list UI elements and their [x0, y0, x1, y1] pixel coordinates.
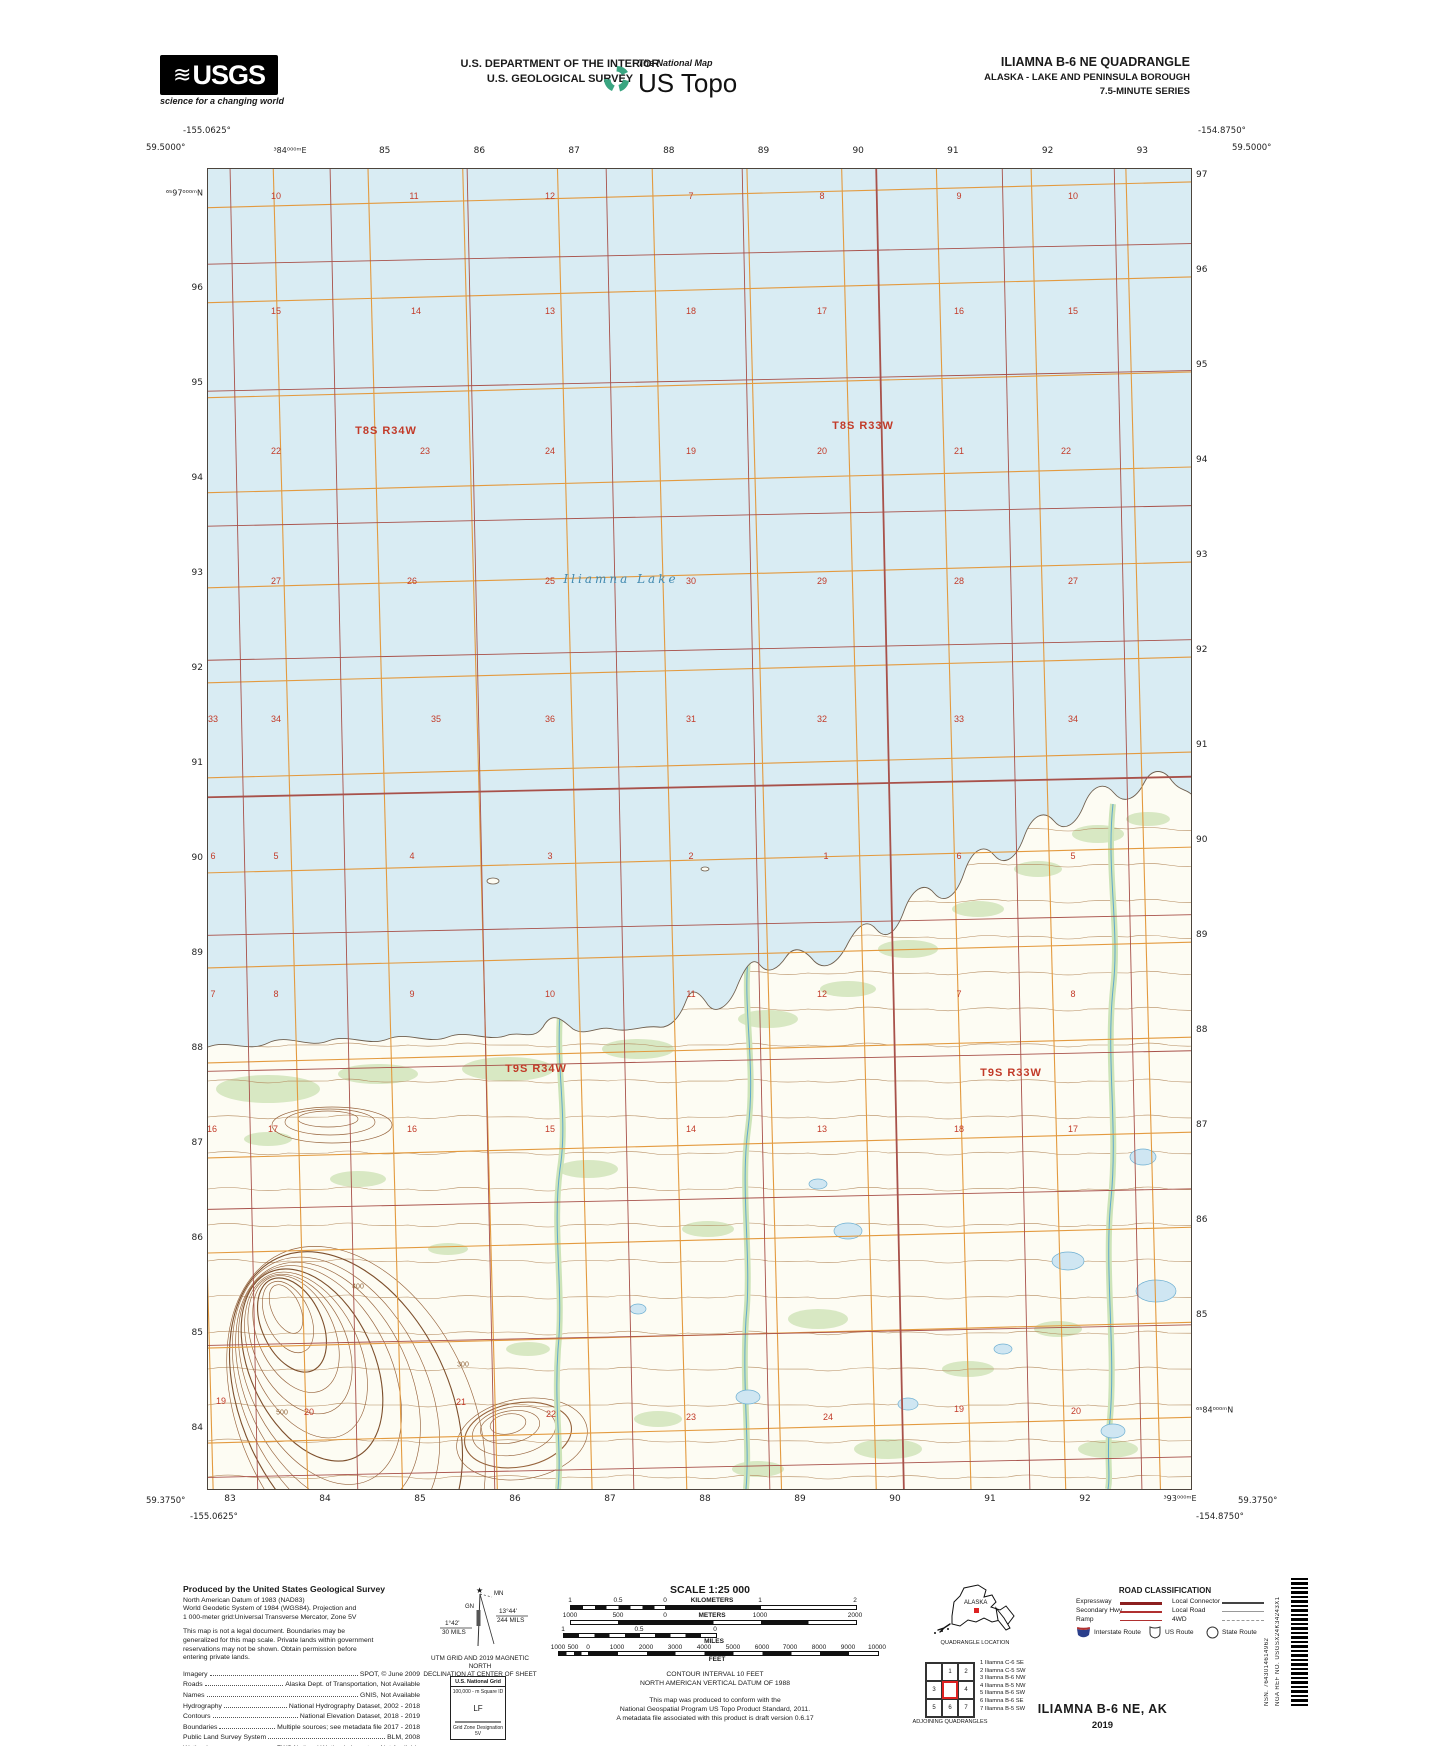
road-class-sample-line	[1120, 1611, 1162, 1613]
quadrangle-header: ILIAMNA B-6 NE QUADRANGLE ALASKA - LAKE …	[770, 55, 1190, 97]
ft-tick: 0	[586, 1644, 590, 1651]
us-route-item: US Route	[1148, 1626, 1194, 1639]
adjoining-grid: 1234567	[925, 1662, 975, 1718]
grid-label-left: 93	[192, 568, 203, 578]
vertical-datum: NORTH AMERICAN VERTICAL DATUM OF 1988	[560, 1679, 870, 1688]
grid-label-top: ³84⁰⁰⁰ᵐE	[273, 146, 306, 155]
conformance-line: A metadata file associated with this pro…	[560, 1714, 870, 1723]
scale-bar-segment	[570, 1605, 667, 1610]
scale-bar-segment	[570, 1620, 620, 1625]
national-map-icon	[600, 62, 634, 96]
adjoining-cell: 6	[942, 1699, 958, 1717]
credit-source: Roads	[183, 1681, 203, 1690]
corner-top-left-lat: 59.5000°	[146, 143, 185, 153]
credit-row: RoadsAlaska Dept. of Transportation, Not…	[183, 1679, 420, 1690]
dot-leader	[224, 1701, 287, 1708]
source-credit-rows: ImagerySPOT, © June 2009RoadsAlaska Dept…	[183, 1669, 420, 1746]
grid-label-right: 95	[1196, 360, 1207, 370]
grid-label-top: 89	[758, 146, 769, 156]
grid-label-bottom: 87	[604, 1494, 615, 1504]
corner-bottom-right-lat: 59.3750°	[1238, 1496, 1277, 1506]
conformance-line: National Geospatial Program US Topo Prod…	[560, 1705, 870, 1714]
adjoining-cell: 2	[958, 1663, 974, 1681]
credit-source: Contours	[183, 1713, 211, 1722]
state-route-label: State Route	[1222, 1629, 1257, 1636]
grid-label-bottom: 85	[414, 1494, 425, 1504]
legal-line: This map is not a legal document. Bounda…	[183, 1628, 420, 1637]
grid-label-bottom: 83	[224, 1494, 235, 1504]
nga-ref-text: NGA REF NO. USGSX24K34243X1	[1275, 1580, 1281, 1706]
grid-label-right: 91	[1196, 740, 1207, 750]
credit-row: Public Land Survey SystemBLM, 2008	[183, 1732, 420, 1743]
road-class-label: Local Road	[1172, 1607, 1205, 1614]
adjoining-center-cell	[942, 1681, 958, 1699]
grid-label-bottom: 92	[1079, 1494, 1090, 1504]
grid-label-right: 92	[1196, 645, 1207, 655]
grid-label-left: ⁶⁵97⁰⁰⁰ᵐN	[166, 189, 203, 198]
sheet-name: ILIAMNA B-6 NE, AK	[990, 1702, 1215, 1716]
sheet-title: ILIAMNA B-6 NE, AK 2019	[990, 1702, 1215, 1731]
us-topo-title: US Topo	[638, 68, 737, 99]
credit-source: Hydrography	[183, 1703, 222, 1712]
conformance-line: This map was produced to conform with th…	[560, 1696, 870, 1705]
km-tick: 0	[663, 1597, 667, 1604]
datum-line: North American Datum of 1983 (NAD83)	[183, 1597, 420, 1606]
credit-value: Multiple sources; see metadata file 2017…	[277, 1724, 420, 1733]
road-class-label: Local Connector	[1172, 1598, 1220, 1605]
adjoining-quad-name: 2 Iliamna C-5 SW	[980, 1668, 1025, 1676]
usng-divider	[455, 1721, 501, 1723]
corner-bottom-left-lon: -155.0625°	[190, 1512, 238, 1522]
grid-label-right: 97	[1196, 170, 1207, 180]
ft-tick: 10000	[868, 1644, 886, 1651]
interstate-route-label: Interstate Route	[1094, 1629, 1141, 1636]
adjoining-caption: ADJOINING QUADRANGLES	[905, 1719, 995, 1725]
credit-row: HydrographyNational Hydrography Dataset,…	[183, 1701, 420, 1712]
grid-label-right: 86	[1196, 1215, 1207, 1225]
adjoining-cell: 7	[958, 1699, 974, 1717]
grid-label-top: 87	[568, 146, 579, 156]
m-tick: 0	[663, 1612, 667, 1619]
road-classification-title: ROAD CLASSIFICATION	[1070, 1586, 1260, 1595]
ft-tick: 6000	[755, 1644, 769, 1651]
grid-label-top: 90	[852, 146, 863, 156]
mi-tick: 1	[561, 1626, 565, 1633]
grid-label-left: 90	[192, 853, 203, 863]
credit-value: SPOT, © June 2009	[360, 1671, 420, 1680]
road-class-sample-line	[1222, 1602, 1264, 1604]
m-tick: 1000	[563, 1612, 577, 1619]
credits-heading: Produced by the United States Geological…	[183, 1585, 420, 1594]
usgs-logo: ≋ USGS	[160, 55, 278, 95]
dot-leader	[207, 1690, 359, 1697]
alaska-outline: ALASKA	[930, 1582, 1020, 1640]
ft-unit: FEET	[709, 1656, 726, 1663]
corner-bottom-right-lon: -154.8750°	[1196, 1512, 1244, 1522]
scale-title: SCALE 1:25 000	[560, 1584, 860, 1596]
grid-label-left: 89	[192, 948, 203, 958]
production-credits: Produced by the United States Geological…	[183, 1585, 420, 1746]
grid-label-top: 92	[1042, 146, 1053, 156]
quad-title: ILIAMNA B-6 NE QUADRANGLE	[770, 55, 1190, 69]
svg-text:GN: GN	[465, 1604, 474, 1610]
quadrangle-location-caption: QUADRANGLE LOCATION	[920, 1640, 1030, 1646]
m-tick: 2000	[848, 1612, 862, 1619]
usng-box: U.S. National Grid 100,000 - m Square ID…	[450, 1676, 506, 1740]
state-route-circle-icon	[1206, 1626, 1219, 1639]
dot-leader	[210, 1669, 358, 1676]
grid-label-right: 93	[1196, 550, 1207, 560]
credit-source: Imagery	[183, 1671, 208, 1680]
map-canvas: 1011127891015141318171615222324192021222…	[207, 168, 1192, 1490]
barcode	[1291, 1578, 1308, 1706]
road-class-label: Expressway	[1076, 1598, 1112, 1605]
grid-label-bottom: 84	[319, 1494, 330, 1504]
grid-label-top: 85	[379, 146, 390, 156]
scale-bar-segment	[665, 1620, 857, 1625]
grid-label-right: 89	[1196, 930, 1207, 940]
grid-label-bottom: 91	[984, 1494, 995, 1504]
road-class-label: 4WD	[1172, 1616, 1187, 1623]
legal-line: reservations may not be shown. Obtain pe…	[183, 1646, 420, 1655]
credit-value: Alaska Dept. of Transportation, Not Avai…	[285, 1681, 420, 1690]
corner-top-left-lon: -155.0625°	[183, 126, 231, 136]
credit-value: BLM, 2008	[387, 1734, 420, 1743]
grid-label-left: 92	[192, 663, 203, 673]
scale-bar-segment	[563, 1633, 717, 1638]
adjoining-quad-name: 4 Iliamna B-5 NW	[980, 1683, 1025, 1691]
grid-label-top: 91	[947, 146, 958, 156]
km-tick: 0.5	[613, 1597, 622, 1604]
corner-bottom-left-lat: 59.3750°	[146, 1496, 185, 1506]
datum-line: 1 000-meter grid:Universal Transverse Me…	[183, 1614, 420, 1623]
grid-label-left: 86	[192, 1233, 203, 1243]
scale-bar-segment	[588, 1651, 879, 1656]
conformance-note: This map was produced to conform with th…	[560, 1696, 870, 1723]
road-class-sample-line	[1120, 1620, 1162, 1621]
grid-label-left: 85	[192, 1328, 203, 1338]
grid-label-right: 94	[1196, 455, 1207, 465]
page: ≋ USGS science for a changing world U.S.…	[0, 0, 1445, 1746]
m-tick: 500	[613, 1612, 624, 1619]
usgs-logo-text: USGS	[192, 60, 265, 91]
quad-series: 7.5-MINUTE SERIES	[770, 86, 1190, 97]
grid-label-right: 87	[1196, 1120, 1207, 1130]
grid-label-right: 96	[1196, 265, 1207, 275]
adjoining-cell: 5	[926, 1699, 942, 1717]
km-tick: 2	[853, 1597, 857, 1604]
credit-row: NamesGNIS, Not Available	[183, 1690, 420, 1701]
usng-sub: 100,000 - m Square ID	[451, 1689, 505, 1695]
grid-label-left: 96	[192, 283, 203, 293]
ft-tick: 1000	[610, 1644, 624, 1651]
grid-label-top: 88	[663, 146, 674, 156]
svg-text:★: ★	[476, 1586, 483, 1595]
road-class-label: Secondary Hwy	[1076, 1607, 1122, 1614]
legal-line: generalized for this map scale. Private …	[183, 1637, 420, 1646]
nsn-text: NSN. 7643014614962	[1264, 1580, 1270, 1706]
interstate-route-item: Interstate Route	[1076, 1626, 1141, 1639]
contour-interval: CONTOUR INTERVAL 10 FEET	[560, 1670, 870, 1679]
grid-label-bottom: 86	[509, 1494, 520, 1504]
grid-label-right: 88	[1196, 1025, 1207, 1035]
scale-bar-segment	[618, 1620, 668, 1625]
m-unit: METERS	[698, 1612, 725, 1619]
contour-note: CONTOUR INTERVAL 10 FEET NORTH AMERICAN …	[560, 1670, 870, 1688]
credit-source: Boundaries	[183, 1724, 217, 1733]
ft-tick: 8000	[812, 1644, 826, 1651]
km-tick: 1	[758, 1597, 762, 1604]
grid-label-bottom: 89	[794, 1494, 805, 1504]
us-topo-logo: The National Map US Topo	[600, 58, 737, 99]
mn-mils: 244 MILS	[497, 1617, 524, 1624]
gn-mils: 30 MILS	[442, 1629, 466, 1636]
dot-leader	[219, 1722, 275, 1729]
datum-line: World Geodetic System of 1984 (WGS84). P…	[183, 1605, 420, 1614]
grid-label-left: 87	[192, 1138, 203, 1148]
credit-value: National Hydrography Dataset, 2002 - 201…	[289, 1703, 420, 1712]
road-class-sample-line	[1120, 1602, 1162, 1605]
mi-tick: 0.5	[634, 1626, 643, 1633]
grid-label-left: 91	[192, 758, 203, 768]
sheet-year: 2019	[990, 1720, 1215, 1731]
state-route-item: State Route	[1206, 1626, 1257, 1639]
grid-label-right: ⁶⁵84⁰⁰⁰ᵐN	[1196, 1406, 1233, 1415]
credit-source: Names	[183, 1692, 205, 1701]
usng-zone: 5V	[451, 1731, 505, 1737]
ft-tick: 4000	[697, 1644, 711, 1651]
ft-tick: 500	[568, 1644, 579, 1651]
credit-row: ContoursNational Elevation Dataset, 2018…	[183, 1711, 420, 1722]
topo-map-art	[208, 169, 1191, 1489]
m-tick: 1000	[753, 1612, 767, 1619]
adjoining-cell: 4	[958, 1681, 974, 1699]
adjoining-cell: 3	[926, 1681, 942, 1699]
adjoining-cell: 1	[942, 1663, 958, 1681]
grid-label-bottom: 90	[889, 1494, 900, 1504]
national-map-brand: The National Map	[638, 58, 737, 68]
credit-value: GNIS, Not Available	[360, 1692, 420, 1701]
scale-bar-segment	[665, 1605, 762, 1610]
usgs-tagline: science for a changing world	[160, 96, 284, 106]
road-class-sample-line	[1222, 1611, 1264, 1612]
road-class-label: Ramp	[1076, 1616, 1094, 1623]
usng-square-id: LF	[451, 1704, 505, 1713]
us-route-shield-icon	[1148, 1626, 1162, 1639]
corner-top-right-lat: 59.5000°	[1232, 143, 1271, 153]
quad-subtitle: ALASKA - LAKE AND PENINSULA BOROUGH	[770, 72, 1190, 83]
grid-label-bottom: 88	[699, 1494, 710, 1504]
grid-label-left: 94	[192, 473, 203, 483]
legal-paragraph: This map is not a legal document. Bounda…	[183, 1628, 420, 1662]
gn-angle: 1°42'	[445, 1620, 459, 1627]
grid-label-top: 93	[1137, 146, 1148, 156]
scale-bar-segment	[558, 1651, 590, 1656]
declination-caption-line1: UTM GRID AND 2019 MAGNETIC NORTH	[420, 1655, 540, 1671]
grid-label-left: 88	[192, 1043, 203, 1053]
km-unit: KILOMETERS	[691, 1597, 734, 1604]
grid-label-left: 95	[192, 378, 203, 388]
usgs-wave-icon: ≋	[173, 62, 189, 88]
ft-tick: 7000	[783, 1644, 797, 1651]
mi-tick: 0	[713, 1626, 717, 1633]
credit-row: ImagerySPOT, © June 2009	[183, 1669, 420, 1680]
ft-tick: 5000	[726, 1644, 740, 1651]
us-route-label: US Route	[1165, 1629, 1194, 1636]
dot-leader	[205, 1679, 284, 1686]
corner-top-right-lon: -154.8750°	[1198, 126, 1246, 136]
adjoining-quad-name: 3 Iliamna B-6 NW	[980, 1675, 1025, 1683]
ft-tick: 9000	[841, 1644, 855, 1651]
km-tick: 1	[568, 1597, 572, 1604]
credit-source: Public Land Survey System	[183, 1734, 266, 1743]
dot-leader	[268, 1732, 385, 1739]
credit-row: BoundariesMultiple sources; see metadata…	[183, 1722, 420, 1733]
ft-tick: 2000	[639, 1644, 653, 1651]
grid-label-right: 90	[1196, 835, 1207, 845]
grid-label-top: 86	[474, 146, 485, 156]
datum-paragraph: North American Datum of 1983 (NAD83)Worl…	[183, 1597, 420, 1623]
svg-text:MN: MN	[494, 1591, 503, 1597]
road-class-sample-line	[1222, 1620, 1264, 1621]
ft-tick: 1000	[551, 1644, 565, 1651]
scale-bar-segment	[760, 1605, 857, 1610]
adjoining-quad-name: 1 Iliamna C-6 SE	[980, 1660, 1025, 1668]
grid-label-left: 84	[192, 1423, 203, 1433]
grid-label-bottom: ³93⁰⁰⁰ᵐE	[1163, 1494, 1196, 1503]
dot-leader	[213, 1711, 298, 1718]
adjoining-cell	[926, 1663, 942, 1681]
usng-title: U.S. National Grid	[451, 1677, 505, 1687]
credit-value: National Elevation Dataset, 2018 - 2019	[300, 1713, 420, 1722]
adjoining-quad-name: 5 Iliamna B-6 SW	[980, 1690, 1025, 1698]
grid-label-right: 85	[1196, 1310, 1207, 1320]
legal-line: entering private lands.	[183, 1654, 420, 1663]
mn-angle: 13°44'	[499, 1608, 517, 1615]
ft-tick: 3000	[668, 1644, 682, 1651]
interstate-shield-icon	[1076, 1626, 1091, 1639]
alaska-label: ALASKA	[964, 1600, 987, 1606]
